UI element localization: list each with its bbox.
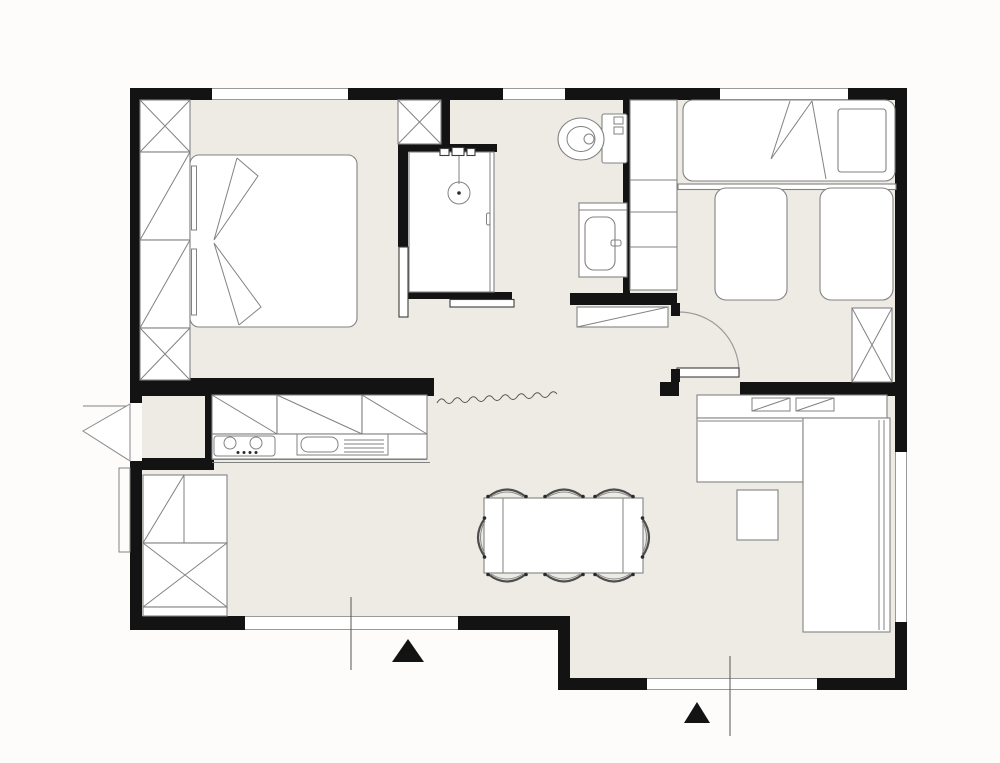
shower-valve [467, 149, 475, 156]
walk-in-shower [399, 148, 514, 318]
door-leaf [677, 368, 739, 377]
floor-mattress-1 [715, 188, 787, 300]
door-hinge [671, 369, 680, 382]
washbasin-vanity [579, 203, 627, 277]
pantry-cabinets [143, 475, 227, 616]
fixtures-layer [0, 0, 1000, 763]
kids-shelf-column [630, 100, 677, 290]
floor-plan [0, 0, 1000, 763]
kitchen-upper-cabinets [212, 395, 427, 434]
l-shaped-sofa [697, 418, 890, 632]
entrance-triangle-1 [392, 639, 424, 662]
shoe-bench [577, 307, 668, 327]
entrance-triangle-2 [684, 702, 710, 723]
entry-door-triangle [83, 404, 130, 461]
wall-break-squiggle [437, 392, 557, 404]
kids-room-door [671, 303, 739, 382]
shower-valve [440, 149, 449, 156]
kitchen-counter [212, 434, 430, 463]
chair-bottom-3 [593, 573, 635, 582]
chair-bottom-2 [543, 573, 585, 582]
door-hinge [671, 303, 680, 316]
wardrobe-master [140, 100, 190, 380]
entry-step [119, 468, 130, 552]
entry-door [83, 404, 130, 552]
closet-top-x-box [398, 100, 441, 144]
sideboard [697, 395, 887, 418]
coffee-table [737, 490, 778, 540]
chair-top-3 [593, 490, 635, 499]
chair-top-2 [543, 490, 585, 499]
kids-single-bed [678, 100, 896, 190]
shower-pocket-leaf [399, 247, 408, 317]
shower-sliding-leaf [450, 300, 514, 308]
double-bed [190, 155, 357, 327]
chair-bottom-1 [486, 573, 528, 582]
chair-top-1 [486, 490, 528, 499]
dining-table [484, 498, 643, 573]
toilet [558, 114, 627, 163]
shower-mixer [452, 148, 464, 156]
kids-wardrobe-x-box [852, 308, 892, 382]
floor-mattress-2 [820, 188, 893, 300]
